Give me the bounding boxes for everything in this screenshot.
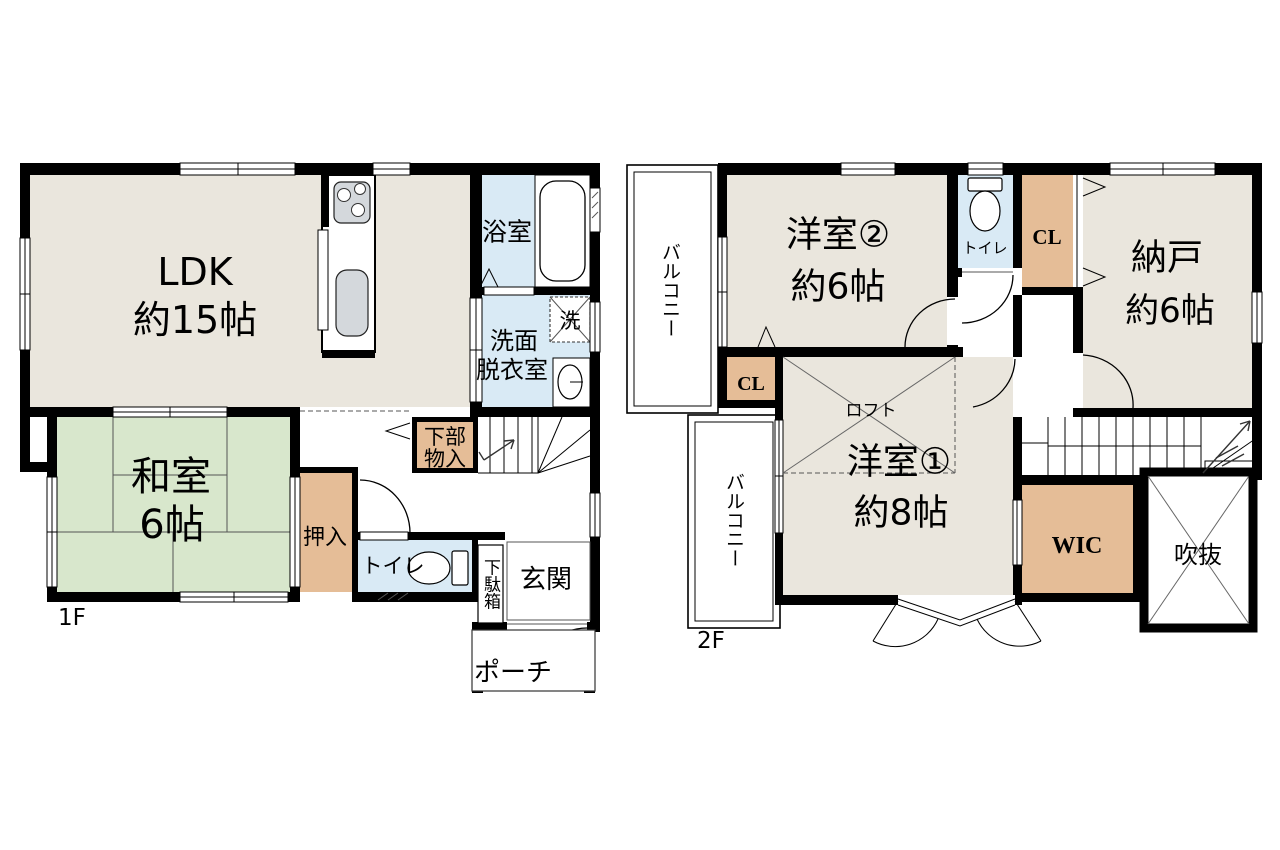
label-yoshitsu2: 洋室② [786,215,890,256]
label-getabako: 下駄箱 [480,559,501,610]
label-balcony-bottom: バルコニー [723,473,745,568]
stove-icon [334,182,370,223]
stairs-1f [478,417,590,473]
label-oshiire: 押入 [303,526,347,551]
label-yoshitsu2-size: 約6帖 [791,267,886,308]
room-yoshitsu2 [727,175,947,347]
label-balcony-top: バルコニー [659,243,681,338]
bath-door-opening [484,287,534,295]
label-fukinuke: 吹抜 [1174,541,1222,569]
label-bath: 浴室 [482,218,532,247]
label-yoshitsu1-size: 約8帖 [854,493,949,534]
label-nando: 納戸 [1131,238,1203,279]
hall-door-arc [360,480,410,533]
stairs-up-arrow [479,440,514,460]
label-toilet-1f: トイレ [362,554,425,578]
label-ldk: LDK [157,250,233,294]
label-loft: ロフト [846,401,897,421]
label-yoshitsu1: 洋室① [847,442,951,483]
toilet-icon-2f [968,178,1002,231]
sliding-door [470,298,482,402]
floorplan-image: LDK 約15帖 和室 6帖 浴室 洗 洗面 脱衣室 下部 物入 押入 トイレ … [0,0,1280,850]
fusuma-opening [290,477,300,587]
balcony-window [775,420,783,533]
floor2-plan: バルコニー 洋室② 約6帖 トイレ CL 納戸 約6帖 CL ロフト 洋室① 約… [627,163,1262,654]
window [1252,292,1262,343]
window [373,163,410,175]
floor1-plan: LDK 約15帖 和室 6帖 浴室 洗 洗面 脱衣室 下部 物入 押入 トイレ … [20,163,600,693]
label-toilet-2f: トイレ [962,239,1007,257]
label-laundry: 洗 [560,309,581,333]
window [1110,163,1215,175]
toilet2-door-arc [962,275,1013,323]
window [590,302,600,352]
label-cl-left: CL [737,373,765,395]
washbasin-icon [553,358,590,407]
label-nando-size: 約6帖 [1125,291,1215,331]
kitchen-sink-icon [336,270,368,336]
bay-window [873,595,1041,647]
floorplan-svg: LDK 約15帖 和室 6帖 浴室 洗 洗面 脱衣室 下部 物入 押入 トイレ … [0,0,1280,850]
window [841,163,895,175]
label-kabu-1: 下部 [424,425,466,449]
stairs-2f [1022,417,1258,476]
label-cl-top: CL [1032,225,1061,249]
label-wic: WIC [1052,533,1103,559]
label-floor2: 2F [697,628,725,654]
balcony-window [718,237,727,347]
window [180,592,288,602]
room-ldk [30,175,470,407]
window [20,238,30,350]
window [590,493,600,537]
bathtub-icon [535,175,590,287]
window [47,477,57,587]
window [590,188,600,232]
label-senmen-2: 脱衣室 [476,356,548,384]
label-washitsu-size: 6帖 [139,502,204,548]
label-washitsu: 和室 [131,454,211,500]
label-floor1: 1F [58,605,86,631]
toilet-door-opening [360,532,408,540]
sliding-opening [113,407,227,417]
window [968,163,1003,175]
label-senmen-1: 洗面 [490,327,538,355]
kitchen-counter-icon [318,175,375,358]
window [180,163,295,175]
wic-opening [1013,500,1022,565]
label-genkan: 玄関 [520,565,572,595]
label-kabu-2: 物入 [424,447,466,471]
label-ldk-size: 約15帖 [133,298,257,342]
label-porch: ポーチ [474,658,552,688]
